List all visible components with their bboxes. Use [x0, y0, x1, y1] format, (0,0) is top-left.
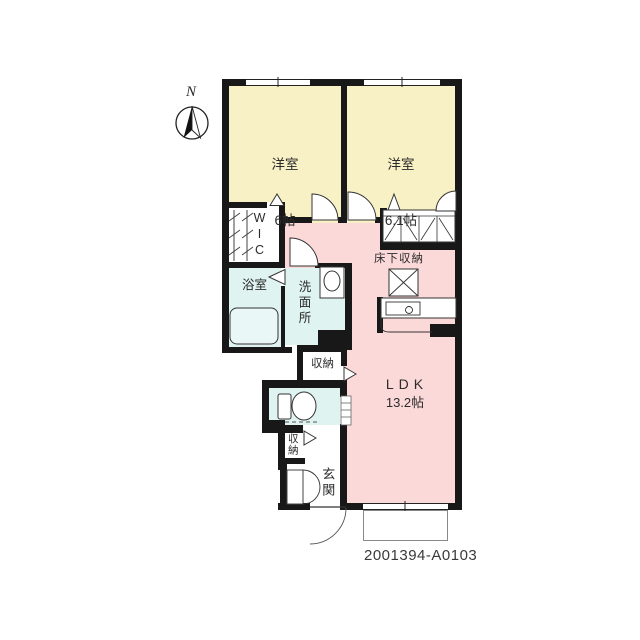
bathtub-icon [230, 308, 278, 344]
room-label-washroom: 洗面所 [294, 280, 312, 327]
compass-n-label: N [186, 82, 196, 103]
floor-plan-canvas: N 洋室 6帖 洋室 6.1帖 WIC 浴室 洗面所 床下収納 LDK 13.2… [0, 0, 640, 640]
room-label-entrance: 玄関 [318, 467, 336, 499]
door-triangle-icon [304, 431, 316, 445]
room-label-bath: 浴室 [228, 277, 281, 295]
underfloor-storage-hatch-icon [389, 269, 418, 296]
ladder-door-icon [341, 396, 351, 425]
room-size: 6帖 [229, 212, 341, 231]
room-size-ldk: 13.2帖 [360, 394, 450, 412]
room-size: 6.1帖 [347, 212, 455, 231]
room-label-bedroom2: 洋室 6.1帖 [347, 118, 455, 269]
plan-code: 2001394-A0103 [364, 545, 477, 566]
room-label-bedroom1: 洋室 6帖 [229, 118, 341, 269]
room-name: 洋室 [229, 156, 341, 175]
sink-icon [320, 267, 344, 298]
room-label-storage-entry: 収納 [285, 433, 300, 456]
shoe-cabinet-icon [287, 470, 320, 504]
room-label-storage-hall: 収納 [300, 356, 345, 372]
toilet-icon [278, 392, 316, 420]
room-label-ldk: LDK [362, 375, 452, 395]
room-label-wic: WIC [250, 211, 268, 259]
room-name: 洋室 [347, 156, 455, 175]
plan-linework [0, 0, 640, 640]
door-triangle-icon [344, 367, 356, 381]
entrance-door-swing-icon [310, 507, 346, 544]
compass-icon [176, 106, 208, 139]
kitchen-counter-icon [381, 298, 456, 332]
room-label-underfloor-storage: 床下収納 [366, 251, 432, 267]
